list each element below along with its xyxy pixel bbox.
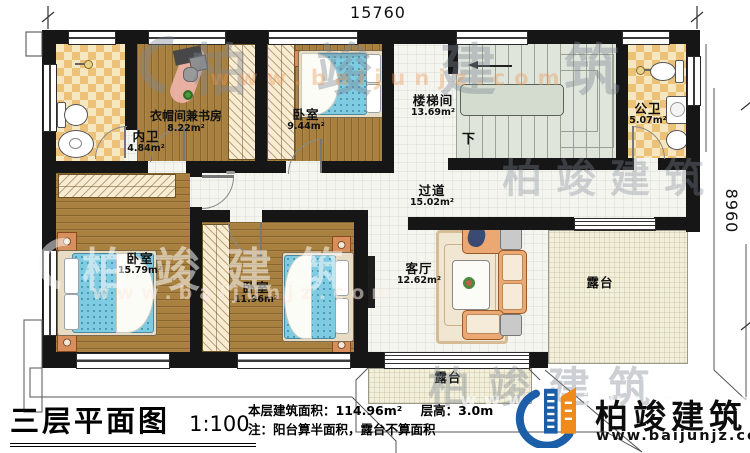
room-name: 卧室 bbox=[104, 252, 176, 266]
room-area: 13.69m² bbox=[398, 108, 468, 119]
room-area: 9.44m² bbox=[270, 122, 342, 133]
eave-and-dimension-lines bbox=[0, 0, 750, 453]
room-name: 露台 bbox=[420, 371, 476, 385]
plan-info: 本层建筑面积：114.96m² 层高：3.0m 注：阳台算半面积，露台不算面积 bbox=[248, 401, 493, 440]
room-name: 公卫 bbox=[618, 102, 678, 116]
plan-scale: 1:100 bbox=[189, 412, 250, 436]
room-label-bedroom2: 卧室 15.79m² bbox=[104, 252, 176, 277]
room-label-study: 衣帽间兼书房 8.22m² bbox=[142, 110, 230, 135]
room-area: 11.96m² bbox=[220, 295, 292, 306]
plan-stat-area: 本层建筑面积：114.96m² bbox=[248, 403, 402, 418]
dimension-top: 15760 bbox=[340, 3, 416, 22]
room-label-terrace-bottom: 露台 bbox=[420, 371, 476, 385]
room-label-bedroom1: 卧室 9.44m² bbox=[270, 108, 342, 133]
room-area: 12.62m² bbox=[384, 276, 454, 287]
room-name: 衣帽间兼书房 bbox=[142, 110, 230, 124]
room-area: 15.02m² bbox=[400, 198, 464, 209]
room-label-corridor: 过道 15.02m² bbox=[400, 184, 464, 209]
room-label-living: 客厅 12.62m² bbox=[384, 262, 454, 287]
room-label-bedroom3: 卧室 11.96m² bbox=[220, 281, 292, 306]
room-area: 8.22m² bbox=[142, 124, 230, 135]
room-name: 露台 bbox=[572, 276, 628, 290]
company-website: www.baijunjz.com bbox=[596, 428, 750, 444]
room-area: 15.79m² bbox=[104, 266, 176, 277]
room-name: 客厅 bbox=[384, 262, 454, 276]
company-logo-icon bbox=[512, 384, 592, 448]
room-name: 楼梯间 bbox=[398, 94, 468, 108]
room-label-terrace-right: 露台 bbox=[572, 276, 628, 290]
room-name: 卧室 bbox=[270, 108, 342, 122]
room-label-gongwei: 公卫 5.07m² bbox=[618, 102, 678, 127]
room-area: 4.84m² bbox=[112, 144, 180, 155]
plan-title: 三层平面图 bbox=[10, 404, 170, 438]
plan-stat-height: 层高：3.0m bbox=[421, 403, 494, 418]
room-name: 卧室 bbox=[220, 281, 292, 295]
room-area: 5.07m² bbox=[618, 116, 678, 127]
room-name: 过道 bbox=[400, 184, 464, 198]
room-label-stairwell: 楼梯间 13.69m² bbox=[398, 94, 468, 119]
dimension-right: 8960 bbox=[719, 179, 741, 243]
plan-note: 注：阳台算半面积，露台不算面积 bbox=[248, 420, 493, 439]
plan-stats-line: 本层建筑面积：114.96m² 层高：3.0m bbox=[248, 401, 493, 420]
floor-plan-canvas: 下 bbox=[0, 0, 750, 453]
title-block: 三层平面图 1:100 bbox=[10, 398, 256, 447]
